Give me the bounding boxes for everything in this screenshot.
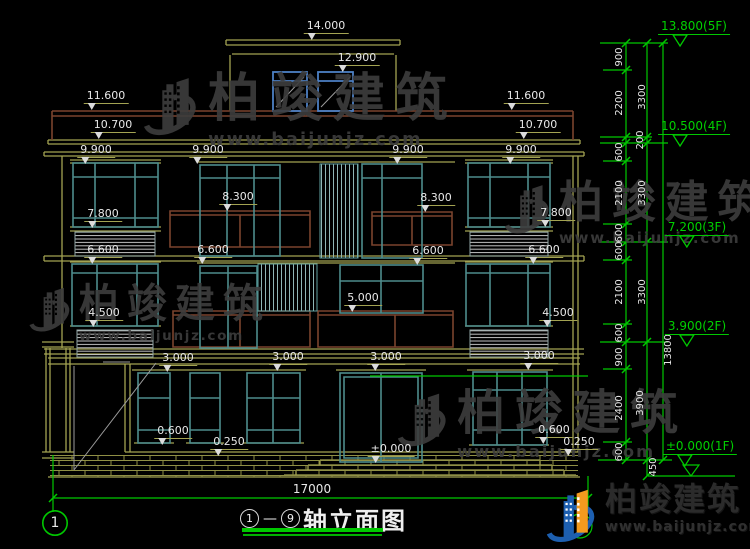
drawing-title: 1 — 9 轴立面图 <box>240 501 407 536</box>
dimension-label: 10.700 <box>91 119 136 133</box>
elevation-level-marker: 7.200(3F) <box>665 221 729 236</box>
dimension-label: 7.800 <box>537 207 575 221</box>
dimension-label: 0.250 <box>560 436 598 450</box>
brand-logo-icon <box>545 483 599 545</box>
dimension-label: 0.250 <box>210 436 248 450</box>
watermark-title: 柏竣建筑 <box>208 72 458 127</box>
chain-dimension-label: 3300 <box>637 276 649 307</box>
axis-marker-1-label: 1 <box>51 515 60 531</box>
dimension-label: 6.600 <box>409 245 447 259</box>
dimension-label: 4.500 <box>85 307 123 321</box>
dimension-label: 0.600 <box>154 425 192 439</box>
chain-dimension-label: 2200 <box>614 87 626 118</box>
watermark-logo-icon <box>28 283 73 333</box>
watermark-logo-icon <box>142 72 201 137</box>
overall-dimension-label: 17000 <box>290 483 334 497</box>
dimension-label: 8.300 <box>219 191 257 205</box>
brand-logo: 柏竣建筑 www.baijunjz.com <box>545 483 750 545</box>
chain-dimension-label: 2100 <box>614 177 626 208</box>
title-axis-circle-start: 1 <box>240 509 259 528</box>
chain-dimension-label: 2100 <box>614 276 626 307</box>
elevation-level-marker: 3.900(2F) <box>665 320 729 335</box>
brand-title: 柏竣建筑 <box>605 483 750 517</box>
watermark-url: www.baijunjz.com <box>79 328 271 344</box>
dimension-label: 14.000 <box>304 20 349 34</box>
dimension-label: 8.300 <box>417 192 455 206</box>
dimension-label: 6.600 <box>194 244 232 258</box>
watermark: 柏竣建筑www.baijunjz.com <box>142 72 458 150</box>
title-underline-thin <box>243 534 382 536</box>
dimension-label: 3.000 <box>367 351 405 365</box>
chain-dimension-label: 450 <box>648 454 660 479</box>
chain-dimension-label: 600 <box>614 139 626 164</box>
elevation-level-marker: 13.800(5F) <box>658 20 730 35</box>
elevation-level-marker: 10.500(4F) <box>658 120 730 135</box>
title-underline <box>242 528 383 532</box>
dimension-label: 11.600 <box>84 90 129 104</box>
chain-dimension-label: 2400 <box>614 392 626 423</box>
chain-dimension-label: 600 <box>614 439 626 464</box>
dimension-label: 9.900 <box>502 144 540 158</box>
dimension-label: 4.500 <box>539 307 577 321</box>
watermark: 柏竣建筑www.baijunjz.com <box>28 283 271 344</box>
dimension-label: 10.700 <box>516 119 561 133</box>
axis-marker-1: 1 <box>42 510 68 536</box>
dimension-label: 9.900 <box>189 144 227 158</box>
brand-url: www.baijunjz.com <box>605 519 750 535</box>
dimension-label: 7.800 <box>84 208 122 222</box>
dimension-label: 5.000 <box>344 292 382 306</box>
chain-dimension-label: 600 <box>614 320 626 345</box>
chain-dimension-label: 200 <box>635 127 647 152</box>
dimension-label: 3.000 <box>269 351 307 365</box>
chain-dimension-label: 900 <box>614 344 626 369</box>
chain-dimension-label: 600 <box>614 238 626 263</box>
elevation-level-marker: ±0.000(1F) <box>663 440 737 455</box>
title-axis-circle-end: 9 <box>281 509 300 528</box>
dimension-label: ±0.000 <box>368 443 415 457</box>
dimension-label: 12.900 <box>335 52 380 66</box>
chain-dimension-label: 3900 <box>635 387 647 418</box>
dimension-label: 3.000 <box>159 352 197 366</box>
title-axis-joiner: — <box>263 511 277 527</box>
dimension-label: 6.600 <box>525 244 563 258</box>
chain-dimension-label: 3300 <box>637 177 649 208</box>
watermark-logo-icon <box>396 388 450 448</box>
dimension-label: 3.000 <box>520 350 558 364</box>
chain-dimension-label: 3300 <box>637 81 649 112</box>
dimension-label: 9.900 <box>77 144 115 158</box>
dimension-label: 9.900 <box>389 144 427 158</box>
dimension-label: 6.600 <box>84 244 122 258</box>
dimension-label: 11.600 <box>504 90 549 104</box>
chain-dimension-label: 13800 <box>663 331 675 369</box>
chain-dimension-label: 900 <box>614 44 626 69</box>
cad-elevation-canvas: 1 — 9 轴立面图 1 柏竣建筑 www.baijunj <box>0 0 750 549</box>
